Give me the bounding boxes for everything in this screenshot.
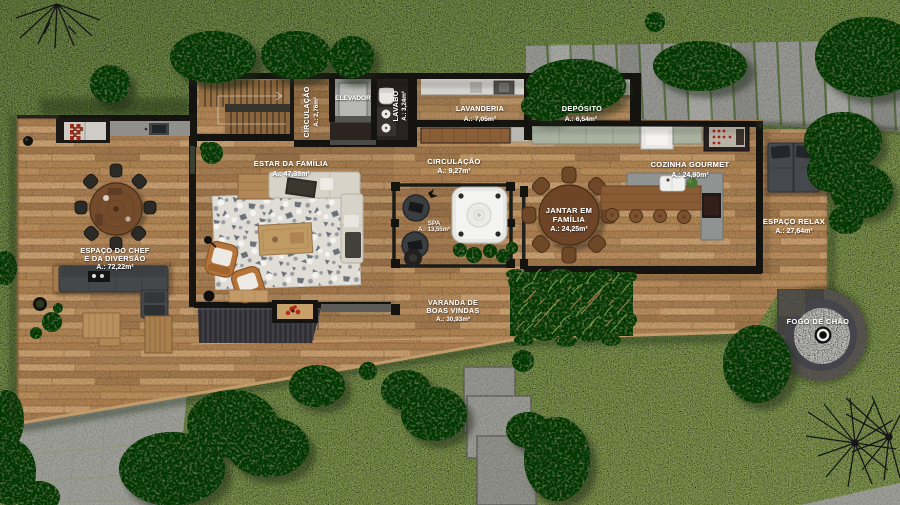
svg-text:A.: 7,05m²: A.: 7,05m² (464, 116, 497, 123)
svg-text:A.: 27,64m²: A.: 27,64m² (775, 228, 813, 235)
svg-text:A.: 30,93m²: A.: 30,93m² (436, 316, 470, 323)
svg-text:LAVANDERIA: LAVANDERIA (456, 104, 504, 113)
svg-text:A.: 47,38m²: A.: 47,38m² (272, 171, 310, 178)
svg-text:ESPAÇO RELAX: ESPAÇO RELAX (763, 217, 825, 226)
svg-text:CIRCULAÇÃO: CIRCULAÇÃO (302, 86, 311, 137)
svg-text:ELEVADOR: ELEVADOR (335, 95, 371, 102)
svg-text:ESTAR DA FAMÍLIA: ESTAR DA FAMÍLIA (254, 159, 329, 168)
svg-text:A.: 24,90m²: A.: 24,90m² (671, 172, 709, 179)
svg-text:A.: 6,54m²: A.: 6,54m² (565, 116, 598, 123)
svg-text:A.: 3,24m²: A.: 3,24m² (401, 91, 408, 121)
svg-text:A.: 24,25m²: A.: 24,25m² (550, 226, 588, 233)
svg-text:CIRCULAÇÃO: CIRCULAÇÃO (427, 157, 480, 166)
svg-text:A.: 9,27m²: A.: 9,27m² (437, 168, 471, 175)
svg-text:A.: 13,55m²: A.: 13,55m² (418, 226, 450, 233)
svg-text:E DA DIVERSÃO: E DA DIVERSÃO (84, 254, 145, 263)
svg-text:SPA: SPA (427, 220, 440, 227)
svg-text:COZINHA GOURMET: COZINHA GOURMET (651, 160, 730, 169)
svg-text:BOAS VINDAS: BOAS VINDAS (426, 306, 479, 315)
svg-text:LAVABO: LAVABO (391, 90, 400, 121)
svg-text:A.: 2,76m²: A.: 2,76m² (313, 97, 320, 127)
svg-text:A.: 72,22m²: A.: 72,22m² (96, 264, 134, 271)
svg-text:JANTAR EM: JANTAR EM (546, 206, 592, 215)
svg-text:FOGO DE CHÃO: FOGO DE CHÃO (787, 317, 850, 326)
svg-text:DEPÓSITO: DEPÓSITO (562, 104, 602, 113)
svg-text:FAMÍLIA: FAMÍLIA (553, 215, 586, 224)
